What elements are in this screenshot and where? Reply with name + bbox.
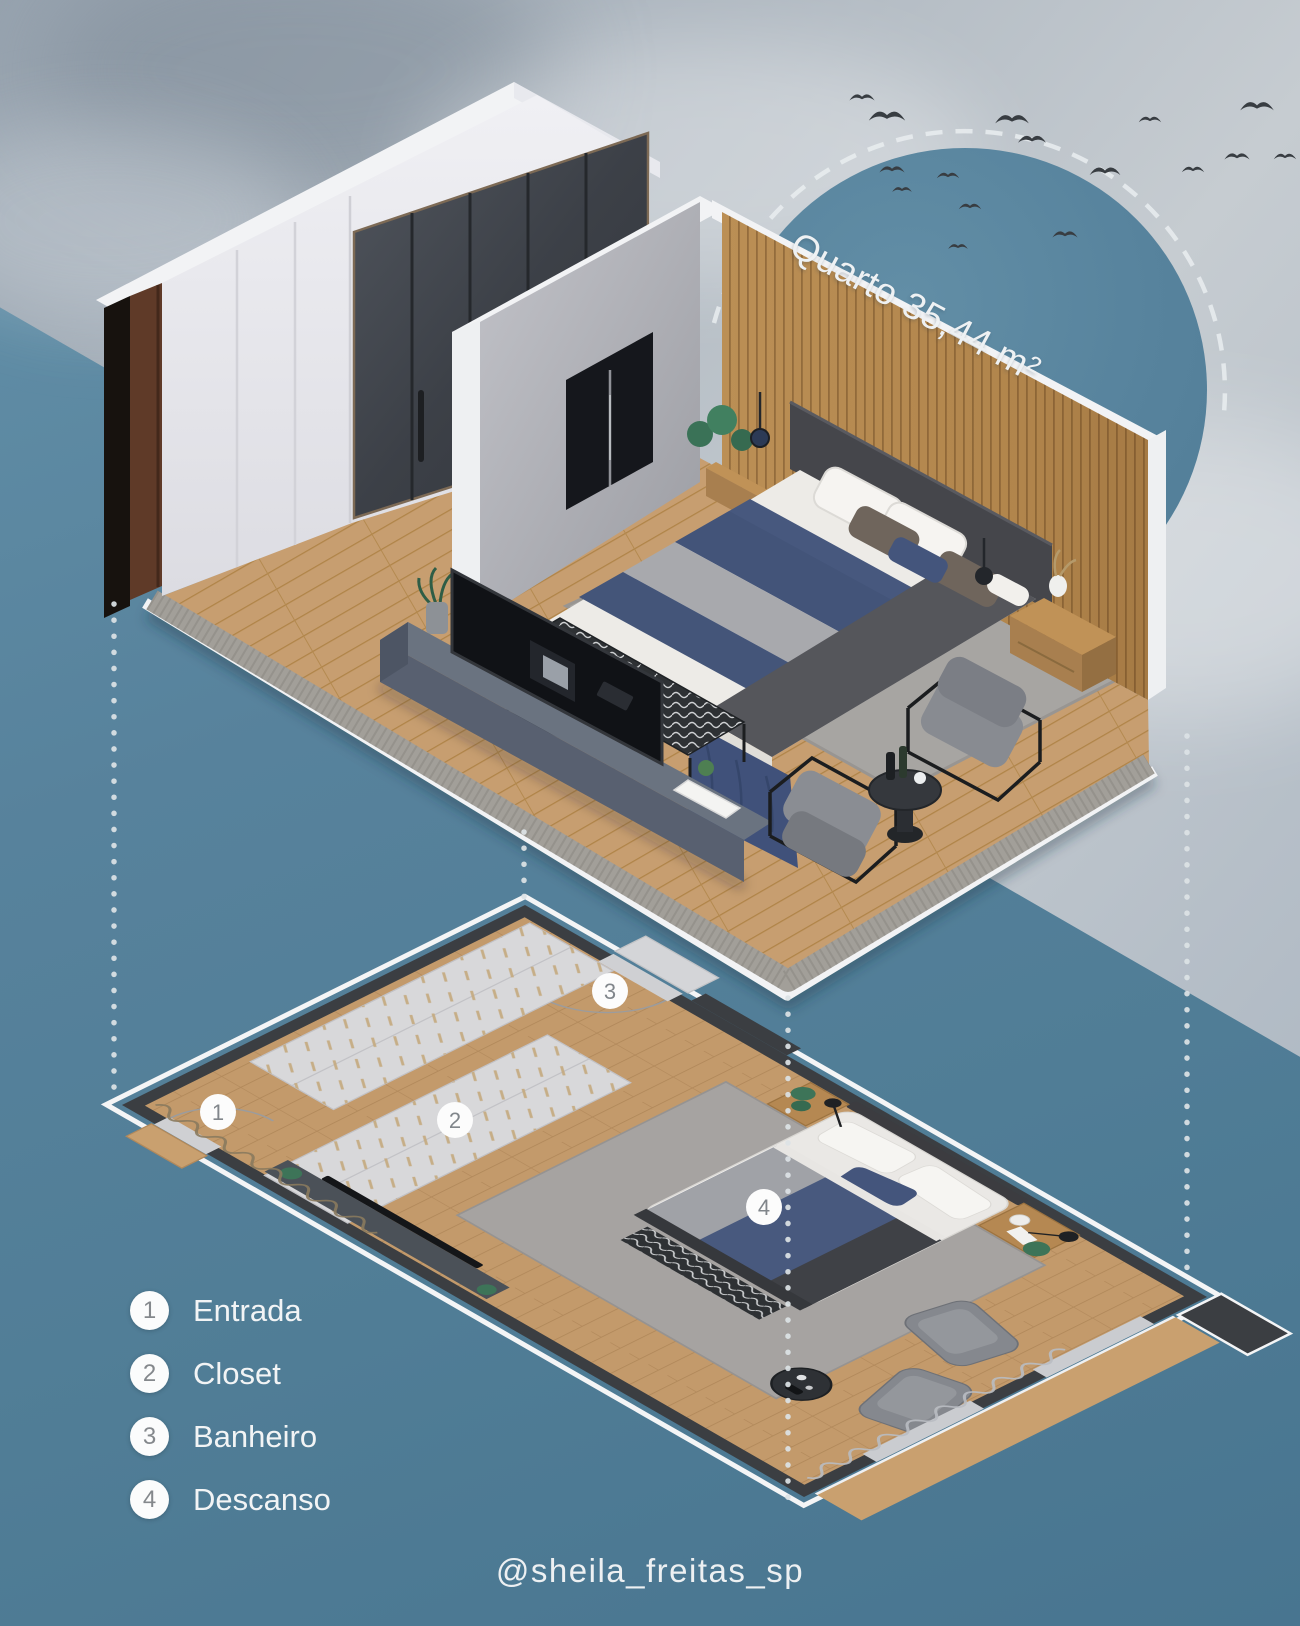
legend-item-entrada: 1 Entrada [130, 1291, 331, 1330]
svg-text:2: 2 [449, 1108, 461, 1133]
svg-text:3: 3 [604, 979, 616, 1004]
plan-marker-banheiro: 3 [592, 973, 628, 1009]
bird-icon [937, 173, 959, 179]
wall-lamp [975, 567, 993, 585]
plan-marker-closet: 2 [437, 1102, 473, 1138]
bird-icon [1182, 167, 1204, 173]
legend-label: Closet [193, 1356, 281, 1392]
legend-badge: 4 [130, 1480, 169, 1519]
bird-icon [879, 166, 904, 172]
closet-handle [418, 390, 424, 462]
bird-icon [1274, 154, 1296, 160]
small-plant [698, 760, 714, 776]
monstera-plant [707, 405, 737, 435]
legend-badge: 2 [130, 1354, 169, 1393]
bird-icon [995, 115, 1029, 123]
legend-item-closet: 2 Closet [130, 1354, 331, 1393]
svg-text:1: 1 [212, 1100, 224, 1125]
legend-label: Entrada [193, 1293, 302, 1329]
plant-pot [426, 602, 448, 634]
bird-icon [948, 244, 968, 249]
legend-badge: 1 [130, 1291, 169, 1330]
bird-icon [1240, 102, 1274, 110]
legend-item-descanso: 4 Descanso [130, 1480, 331, 1519]
instagram-handle: @sheila_freitas_sp [0, 1552, 1300, 1590]
legend-label: Banheiro [193, 1419, 317, 1455]
entry-door-frame [104, 296, 130, 618]
bird-icon [1052, 231, 1077, 237]
isometric-room [96, 82, 1166, 1000]
bird-icon [849, 94, 874, 100]
svg-text:4: 4 [758, 1195, 770, 1220]
plan-marker-descanso: 4 [746, 1189, 782, 1225]
bird-icon [1224, 153, 1249, 159]
bird-icon [869, 112, 905, 121]
birds-flock [849, 94, 1296, 249]
legend-item-banheiro: 3 Banheiro [130, 1417, 331, 1456]
bird-icon [959, 204, 981, 210]
legend-badge: 3 [130, 1417, 169, 1456]
bird-icon [1139, 117, 1161, 123]
bird-icon [892, 187, 912, 192]
plan-marker-entrada: 1 [200, 1094, 236, 1130]
legend-label: Descanso [193, 1482, 331, 1518]
legend: 1 Entrada 2 Closet 3 Banheiro 4 Descanso [130, 1291, 331, 1519]
poster-canvas: 1 2 3 4 Quarto 35,44 m² 1 Entrada 2 Clos [0, 0, 1300, 1626]
pendant-lamp [751, 429, 769, 447]
